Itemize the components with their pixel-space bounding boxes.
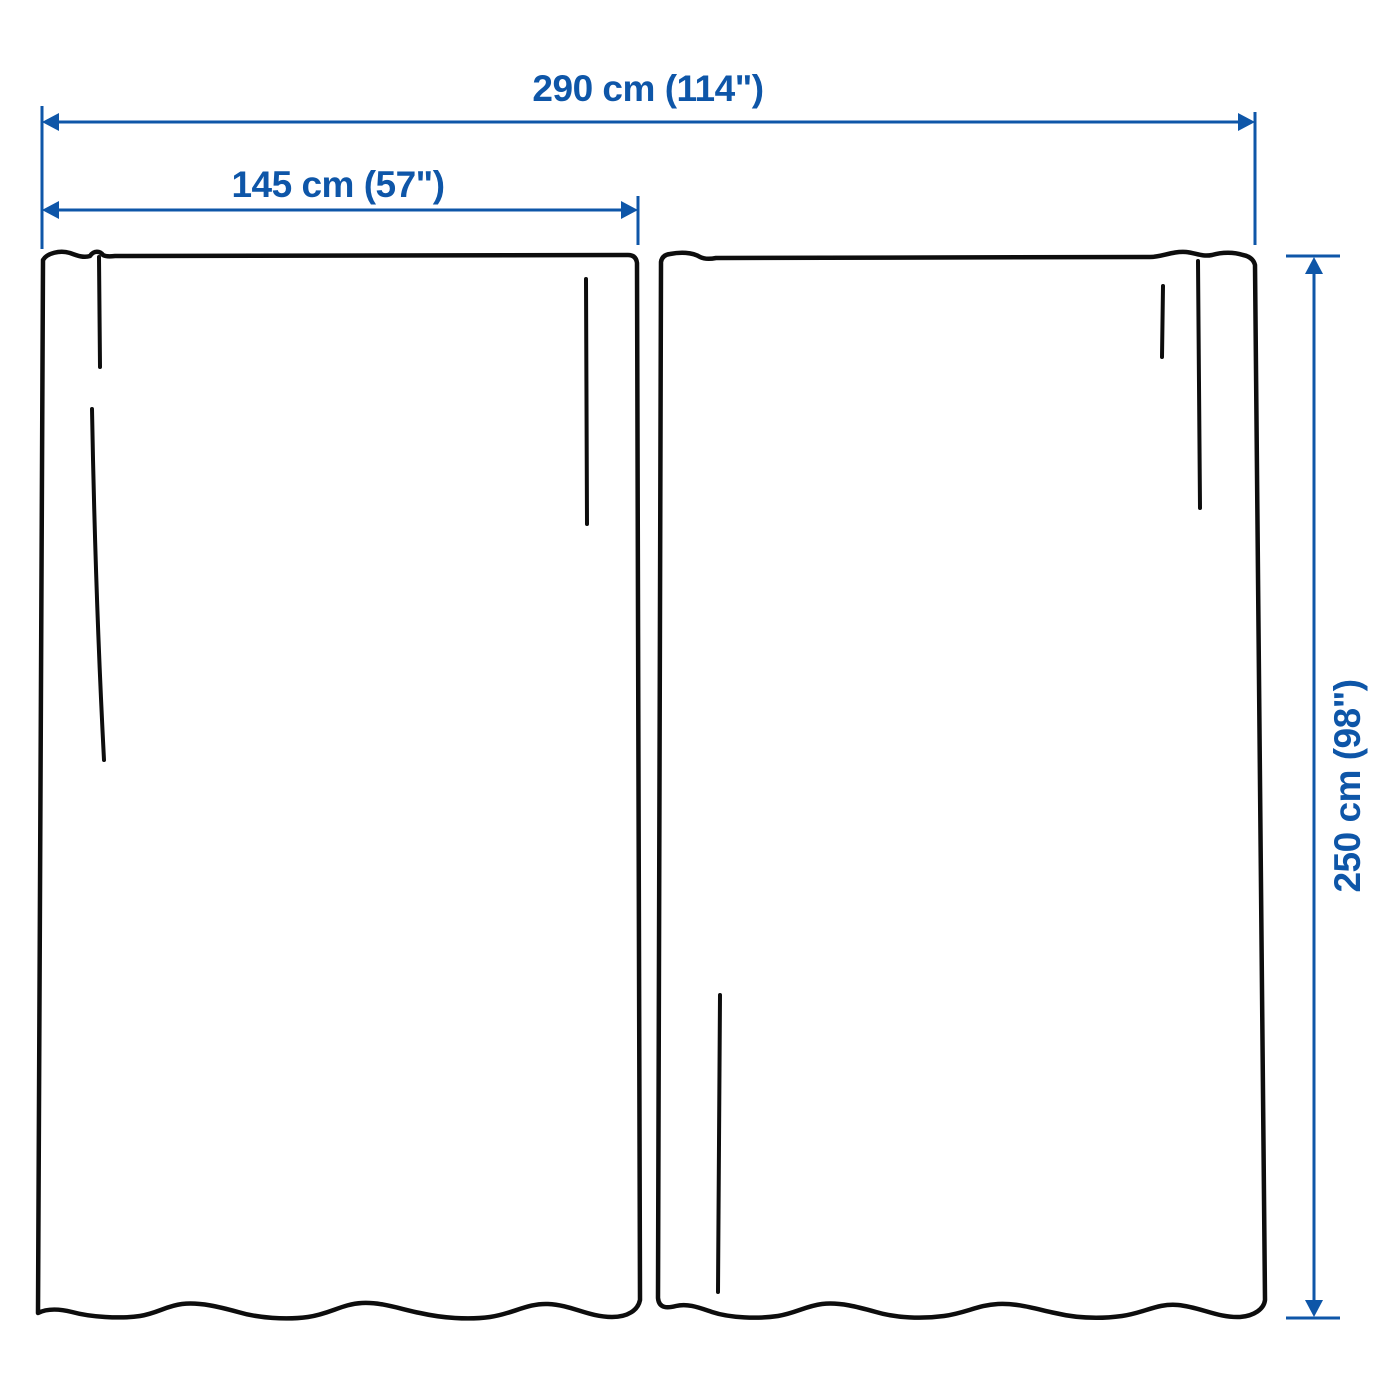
fold-line	[99, 257, 100, 367]
left-curtain-panel	[38, 252, 640, 1319]
right-curtain-panel	[658, 252, 1265, 1318]
total-width-dimension	[42, 106, 1255, 249]
arrowhead-right-icon	[621, 201, 638, 219]
arrowhead-up-icon	[1305, 257, 1323, 274]
arrowhead-right-icon	[1238, 113, 1255, 131]
height-label: 250 cm (98")	[1327, 679, 1368, 892]
total-width-label: 290 cm (114")	[532, 68, 763, 109]
arrowhead-down-icon	[1305, 1300, 1323, 1317]
fold-line	[1198, 261, 1200, 508]
curtain-dimension-diagram: 290 cm (114") 145 cm (57") 250 cm (98")	[0, 0, 1400, 1400]
panel-width-label: 145 cm (57")	[231, 164, 444, 205]
diagram-svg: 290 cm (114") 145 cm (57") 250 cm (98")	[0, 0, 1400, 1400]
arrowhead-left-icon	[42, 201, 59, 219]
fold-line	[718, 995, 720, 1292]
curtain-panels	[38, 252, 1265, 1319]
fold-line	[586, 279, 587, 524]
fold-line	[1162, 286, 1163, 357]
arrowhead-left-icon	[42, 113, 59, 131]
